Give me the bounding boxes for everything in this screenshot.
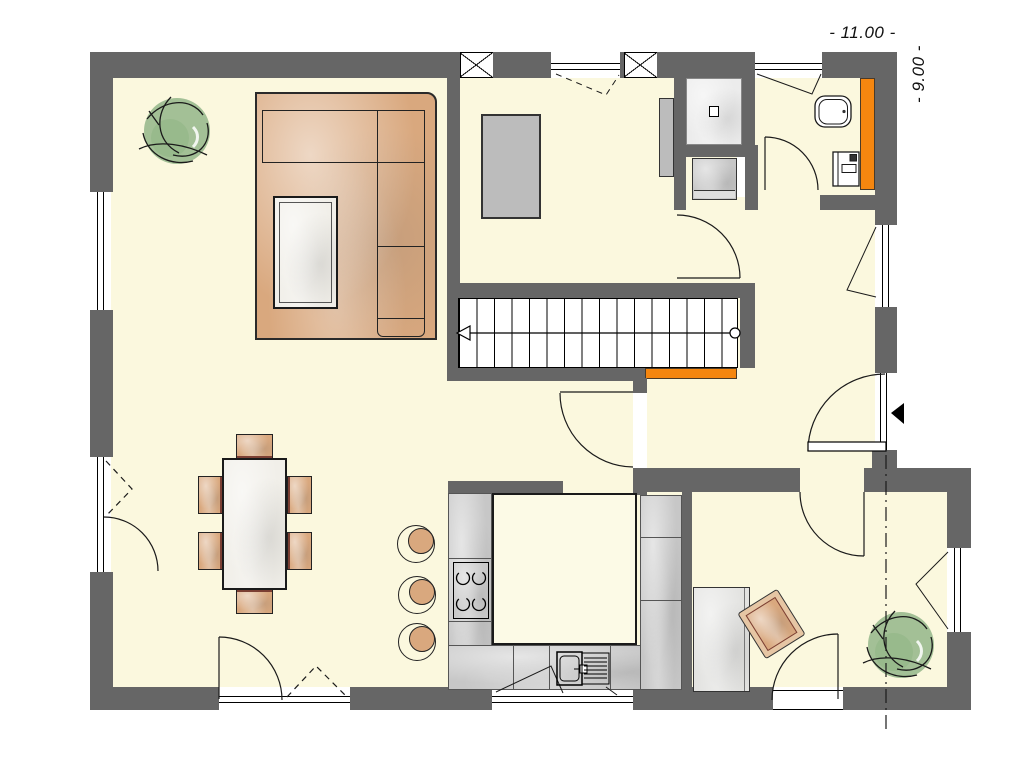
wall-stairs-bottom <box>447 368 645 381</box>
sofa-cushion-line-2 <box>377 318 425 319</box>
window-kitchen <box>492 690 633 710</box>
kitchen-counter-right <box>640 495 682 690</box>
wall-wc-south <box>820 195 875 210</box>
dining-chair-left-1 <box>198 476 223 514</box>
staircase <box>458 298 738 368</box>
wall-kitchen-north <box>448 481 563 493</box>
wall-left-1 <box>90 52 113 192</box>
wall-top-1 <box>90 52 460 78</box>
shower-drain <box>709 106 719 117</box>
stool-3 <box>398 623 436 661</box>
stool-3-seat <box>409 626 435 652</box>
wall-kitchen-east <box>682 492 692 687</box>
hall-door-opening <box>633 393 647 468</box>
wall-extension-right-1 <box>947 492 971 548</box>
window-wc <box>755 52 822 78</box>
window-extension <box>949 548 969 632</box>
dining-chair-right-2 <box>287 532 312 570</box>
counter-division-7 <box>640 600 682 601</box>
floor-plan: - 11.00 - - 9.00 - <box>0 0 1024 768</box>
wall-left-2 <box>90 310 113 457</box>
kitchen-island-floor <box>492 493 637 645</box>
bed <box>481 114 541 219</box>
wall-extension-right-2 <box>947 632 971 710</box>
coffee-table <box>273 196 338 309</box>
wall-hall-south <box>647 468 800 492</box>
entrance-door-opening <box>875 373 897 450</box>
desk-edge-line <box>744 588 745 691</box>
stool-2-seat <box>409 579 435 605</box>
dining-table <box>222 458 287 590</box>
wc-radiator-orange <box>860 78 875 190</box>
wall-wc-west-stub <box>745 147 758 210</box>
washbasin-front-edge <box>694 190 735 198</box>
wall-shower-east <box>742 78 755 145</box>
sofa-seat-vertical <box>377 110 425 337</box>
counter-division-6 <box>640 537 682 538</box>
counter-division-5 <box>610 645 611 690</box>
counter-division-2 <box>448 621 492 622</box>
wall-extension-top <box>897 468 971 492</box>
door-bottom-left-terrace <box>219 690 350 710</box>
shaft-x-symbol-2 <box>624 52 658 78</box>
wall-right-2 <box>875 307 897 373</box>
wall-right-1 <box>875 52 897 225</box>
counter-division-3 <box>513 645 514 690</box>
sofa-cushion-line-1 <box>377 246 425 247</box>
stool-1 <box>397 525 435 563</box>
dining-chair-left-2 <box>198 532 223 570</box>
window-top-room <box>551 52 620 78</box>
wall-toproom-east <box>674 75 686 210</box>
washbasin-niche <box>692 158 737 200</box>
dining-chair-bottom <box>236 589 273 614</box>
window-right-hall <box>877 225 895 307</box>
counter-division-1 <box>448 558 492 559</box>
counter-division-4 <box>549 645 550 690</box>
wall-top-2 <box>493 52 551 78</box>
wall-office-jamb <box>864 468 897 492</box>
door-bottom-office <box>773 690 843 710</box>
wall-hall-stub-top <box>633 378 647 393</box>
wall-stairs-top <box>447 283 755 298</box>
dining-chair-right-1 <box>287 476 312 514</box>
wall-top-4 <box>657 52 755 78</box>
stool-1-seat <box>408 528 434 554</box>
dimension-width-label: - 11.00 - <box>810 23 915 43</box>
door-left-terrace <box>92 457 111 572</box>
wall-bottom-2 <box>350 687 492 710</box>
wall-bottom-1 <box>90 687 219 710</box>
stairs-sideboard-orange <box>645 368 737 379</box>
wardrobe <box>659 98 674 177</box>
window-left <box>92 192 111 310</box>
wall-hall-south-stub <box>633 468 647 495</box>
shaft-x-symbol-1 <box>460 52 494 78</box>
shower-room-opening <box>737 157 745 197</box>
extension-floor <box>875 492 947 687</box>
cooktop <box>453 562 489 619</box>
wall-stairs-right <box>740 283 755 368</box>
stool-2 <box>398 576 436 614</box>
dining-chair-top <box>236 434 273 459</box>
desk <box>693 587 750 692</box>
coffee-table-inner-edge <box>279 202 332 303</box>
dimension-height-label: - 9.00 - <box>909 21 929 127</box>
